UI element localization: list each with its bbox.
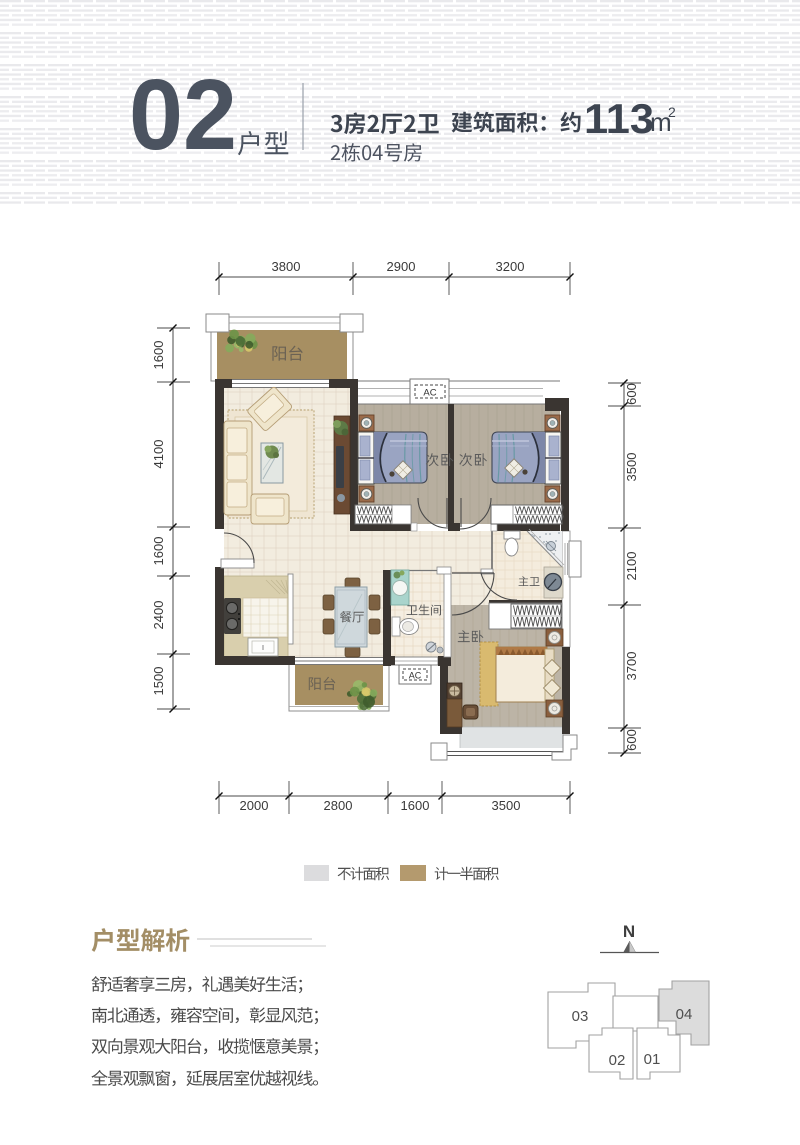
svg-text:2100: 2100 xyxy=(624,552,639,581)
svg-text:2800: 2800 xyxy=(324,798,353,813)
svg-text:03: 03 xyxy=(572,1008,589,1025)
svg-text:600: 600 xyxy=(624,383,639,405)
svg-text:AC: AC xyxy=(423,388,436,399)
svg-text:AC: AC xyxy=(409,671,422,681)
svg-text:4100: 4100 xyxy=(151,440,166,469)
svg-text:2400: 2400 xyxy=(151,601,166,630)
svg-text:1600: 1600 xyxy=(401,798,430,813)
svg-text:N: N xyxy=(623,922,635,941)
svg-text:04: 04 xyxy=(676,1006,693,1023)
svg-text:600: 600 xyxy=(624,729,639,751)
svg-text:2900: 2900 xyxy=(387,259,416,274)
svg-text:1500: 1500 xyxy=(151,667,166,696)
svg-text:1600: 1600 xyxy=(151,537,166,566)
svg-text:1600: 1600 xyxy=(151,341,166,370)
svg-text:02: 02 xyxy=(129,59,237,171)
svg-text:3500: 3500 xyxy=(624,453,639,482)
svg-text:01: 01 xyxy=(644,1051,661,1068)
svg-text:3500: 3500 xyxy=(492,798,521,813)
svg-text:3800: 3800 xyxy=(272,259,301,274)
svg-text:113: 113 xyxy=(584,95,654,142)
svg-text:2: 2 xyxy=(668,104,676,120)
svg-text:3700: 3700 xyxy=(624,652,639,681)
svg-text:2000: 2000 xyxy=(240,798,269,813)
svg-text:3200: 3200 xyxy=(496,259,525,274)
svg-text:02: 02 xyxy=(609,1052,626,1069)
